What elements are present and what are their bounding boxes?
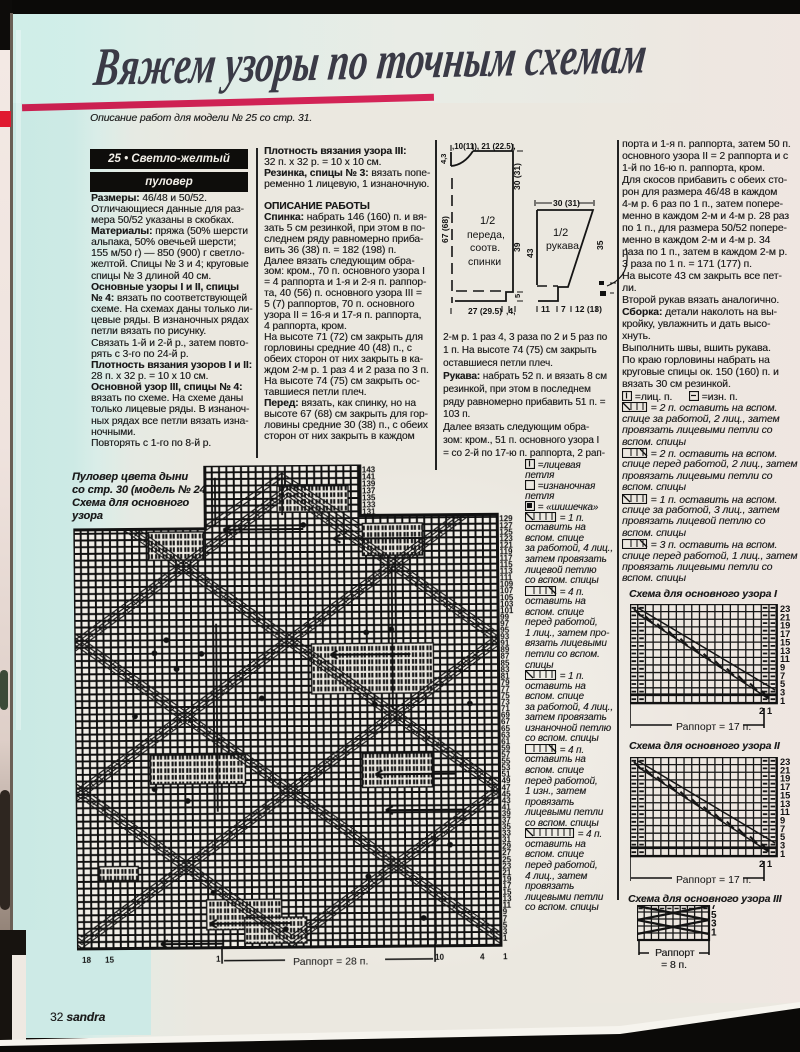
- svg-text:2 1: 2 1: [759, 859, 773, 870]
- svg-text:рукава: рукава: [546, 240, 579, 252]
- svg-text:39: 39: [512, 242, 522, 252]
- svg-text:,10(11), 21 (22.5),: ,10(11), 21 (22.5),: [452, 142, 516, 151]
- svg-text:,4,: ,4,: [506, 306, 515, 316]
- svg-text:спинки: спинки: [468, 256, 501, 268]
- svg-text:4,3: 4,3: [440, 154, 448, 164]
- svg-text:Раппорт = 28 п.: Раппорт = 28 п.: [293, 955, 368, 968]
- svg-text:1/2: 1/2: [553, 227, 568, 239]
- svg-text:67 (68): 67 (68): [440, 216, 450, 243]
- svg-text:43: 43: [525, 248, 535, 258]
- svg-text:1: 1: [503, 934, 508, 943]
- svg-text:1: 1: [711, 927, 717, 938]
- svg-text:соотв.: соотв.: [470, 242, 500, 254]
- svg-text:12 (13): 12 (13): [575, 304, 602, 314]
- svg-text:10: 10: [435, 953, 445, 962]
- svg-text:Раппорт = 17 п.: Раппорт = 17 п.: [676, 721, 751, 733]
- svg-text:1/2: 1/2: [480, 215, 495, 227]
- svg-text:35: 35: [595, 240, 605, 250]
- svg-text:27 (29.5): 27 (29.5): [468, 306, 502, 316]
- svg-text:4: 4: [480, 952, 485, 961]
- svg-text:11: 11: [541, 304, 550, 314]
- svg-text:18: 18: [82, 956, 92, 965]
- svg-text:1: 1: [216, 955, 221, 964]
- svg-text:переда,: переда,: [467, 229, 505, 241]
- svg-text:30 (31): 30 (31): [512, 163, 522, 190]
- svg-text:1: 1: [780, 696, 785, 706]
- svg-text:1: 1: [780, 849, 785, 859]
- svg-text:30 (31): 30 (31): [553, 198, 580, 208]
- svg-text:131: 131: [362, 508, 376, 517]
- svg-text:2 1: 2 1: [759, 706, 773, 717]
- svg-text:7: 7: [561, 304, 566, 314]
- svg-text:5: 5: [513, 294, 522, 298]
- svg-text:1: 1: [503, 952, 508, 961]
- svg-text:15: 15: [105, 956, 115, 965]
- svg-text:Раппорт = 17 п.: Раппорт = 17 п.: [676, 874, 751, 886]
